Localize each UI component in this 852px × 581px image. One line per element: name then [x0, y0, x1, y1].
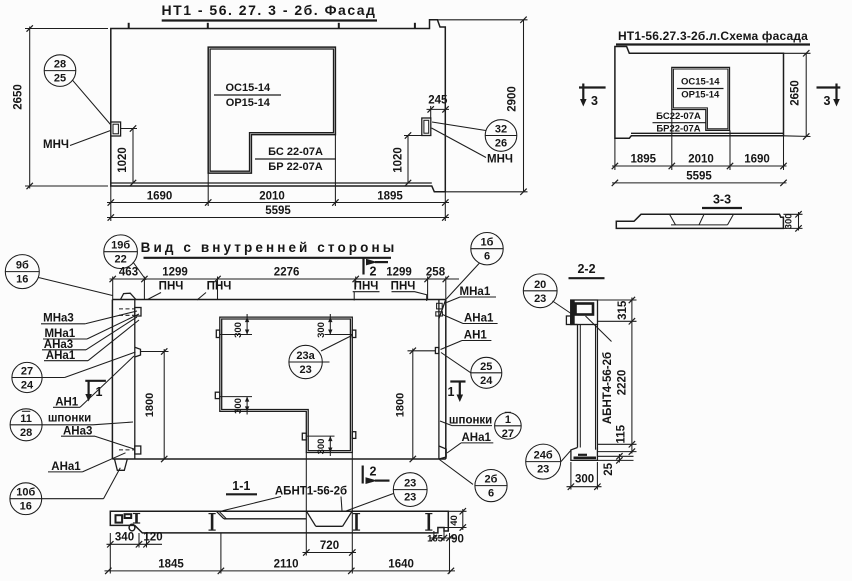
svg-text:16: 16: [20, 501, 32, 513]
svg-text:АНа1: АНа1: [51, 461, 81, 473]
svg-text:МНЧ: МНЧ: [43, 139, 69, 151]
svg-text:2220: 2220: [616, 370, 628, 396]
svg-text:1800: 1800: [395, 393, 407, 417]
svg-text:90: 90: [451, 534, 464, 546]
svg-text:16: 16: [16, 274, 28, 286]
svg-text:АНа1: АНа1: [464, 313, 494, 325]
svg-text:22: 22: [114, 254, 126, 266]
svg-text:шпонки: шпонки: [449, 415, 492, 427]
svg-text:1690: 1690: [744, 154, 770, 166]
svg-text:АБНТ1-56-2б: АБНТ1-56-2б: [275, 486, 347, 498]
svg-text:24б: 24б: [534, 450, 553, 462]
svg-text:2650: 2650: [13, 84, 25, 110]
svg-text:1020: 1020: [393, 147, 405, 173]
svg-text:20: 20: [534, 279, 546, 291]
svg-text:9б: 9б: [16, 260, 29, 272]
svg-text:120: 120: [143, 532, 162, 544]
svg-text:3: 3: [591, 94, 598, 108]
svg-text:5595: 5595: [265, 205, 291, 217]
svg-text:3-3: 3-3: [713, 193, 731, 207]
svg-text:БС 22-07А: БС 22-07А: [268, 146, 323, 158]
svg-text:ОР15-14: ОР15-14: [681, 90, 720, 101]
svg-text:БС22-07А: БС22-07А: [656, 111, 701, 122]
svg-text:720: 720: [320, 540, 339, 552]
svg-text:300: 300: [233, 322, 244, 338]
svg-text:165: 165: [427, 534, 444, 545]
svg-text:ОС15-14: ОС15-14: [225, 82, 271, 94]
svg-text:27: 27: [502, 428, 514, 440]
svg-text:258: 258: [426, 267, 446, 279]
svg-text:1299: 1299: [386, 267, 412, 279]
svg-text:19б: 19б: [111, 240, 130, 252]
svg-text:26: 26: [495, 138, 507, 150]
svg-text:11: 11: [20, 413, 32, 425]
svg-text:6: 6: [484, 251, 490, 263]
svg-text:1-1: 1-1: [232, 479, 250, 493]
svg-text:245: 245: [428, 95, 448, 107]
svg-text:300: 300: [784, 213, 795, 229]
svg-text:23: 23: [534, 293, 546, 305]
svg-text:1б: 1б: [481, 237, 494, 249]
svg-text:1895: 1895: [631, 154, 657, 166]
svg-text:1800: 1800: [144, 393, 156, 417]
svg-text:300: 300: [575, 474, 594, 486]
svg-text:23: 23: [404, 492, 416, 504]
svg-text:НТ1-56.27.3-2б.л.Схема фасада: НТ1-56.27.3-2б.л.Схема фасада: [618, 29, 808, 43]
svg-text:315: 315: [617, 300, 629, 320]
svg-text:2: 2: [370, 265, 377, 279]
svg-text:2010: 2010: [259, 191, 285, 203]
svg-text:115: 115: [615, 424, 627, 443]
svg-text:32: 32: [495, 124, 507, 136]
svg-text:300: 300: [316, 322, 327, 338]
svg-text:25: 25: [54, 73, 66, 85]
svg-text:ПНЧ: ПНЧ: [159, 281, 184, 293]
svg-text:463: 463: [119, 267, 138, 279]
svg-text:2900: 2900: [507, 86, 519, 112]
svg-text:БР22-07А: БР22-07А: [656, 124, 700, 135]
svg-text:6: 6: [488, 488, 494, 500]
svg-text:27: 27: [21, 366, 33, 378]
svg-text:1299: 1299: [162, 267, 188, 279]
svg-text:23а: 23а: [296, 350, 315, 362]
svg-text:1690: 1690: [147, 191, 173, 203]
svg-text:40: 40: [449, 515, 460, 526]
svg-text:МНа1: МНа1: [460, 286, 491, 298]
svg-text:ОС15-14: ОС15-14: [681, 77, 720, 88]
svg-text:5595: 5595: [686, 171, 712, 183]
svg-text:10б: 10б: [16, 487, 35, 499]
svg-text:Вид с внутренней стороны: Вид с внутренней стороны: [141, 240, 398, 255]
svg-text:2276: 2276: [274, 267, 300, 279]
svg-text:шпонки: шпонки: [48, 413, 91, 425]
svg-text:2010: 2010: [688, 154, 714, 166]
svg-text:23: 23: [404, 478, 416, 490]
svg-text:НТ1 - 56. 27. 3 - 2б. Фасад: НТ1 - 56. 27. 3 - 2б. Фасад: [162, 2, 377, 18]
svg-text:АНа3: АНа3: [63, 425, 92, 437]
svg-text:2650: 2650: [790, 80, 802, 106]
svg-text:23: 23: [537, 464, 549, 476]
svg-text:ПНЧ: ПНЧ: [391, 281, 416, 293]
svg-text:МНа3: МНа3: [43, 313, 74, 325]
svg-text:24: 24: [480, 375, 493, 387]
svg-text:28: 28: [20, 427, 32, 439]
svg-text:ПНЧ: ПНЧ: [354, 281, 379, 293]
svg-text:2б: 2б: [485, 474, 498, 486]
svg-text:АНа1: АНа1: [461, 432, 491, 444]
svg-text:300: 300: [233, 398, 244, 414]
svg-text:300: 300: [316, 439, 327, 455]
svg-text:2: 2: [370, 465, 377, 479]
svg-text:23: 23: [299, 364, 311, 376]
svg-text:1: 1: [505, 414, 511, 426]
svg-text:1020: 1020: [117, 147, 129, 173]
svg-text:АН1: АН1: [55, 397, 79, 409]
svg-text:25: 25: [603, 462, 615, 475]
svg-text:24: 24: [21, 380, 34, 392]
svg-text:АН1: АН1: [464, 330, 488, 342]
svg-text:МНЧ: МНЧ: [487, 154, 513, 166]
svg-text:25: 25: [480, 361, 492, 373]
svg-text:28: 28: [54, 59, 66, 71]
svg-text:2110: 2110: [274, 559, 299, 571]
svg-text:1845: 1845: [158, 559, 184, 571]
svg-text:1: 1: [448, 385, 455, 399]
svg-text:1640: 1640: [388, 559, 414, 571]
svg-text:ОР15-14: ОР15-14: [226, 97, 271, 109]
svg-text:340: 340: [115, 532, 134, 544]
svg-text:ПНЧ: ПНЧ: [207, 281, 232, 293]
svg-text:АБНТ4-56-2б: АБНТ4-56-2б: [602, 352, 614, 424]
svg-text:1895: 1895: [377, 191, 403, 203]
svg-text:БР 22-07А: БР 22-07А: [268, 161, 322, 173]
svg-text:2-2: 2-2: [577, 262, 595, 276]
svg-text:3: 3: [824, 94, 831, 108]
